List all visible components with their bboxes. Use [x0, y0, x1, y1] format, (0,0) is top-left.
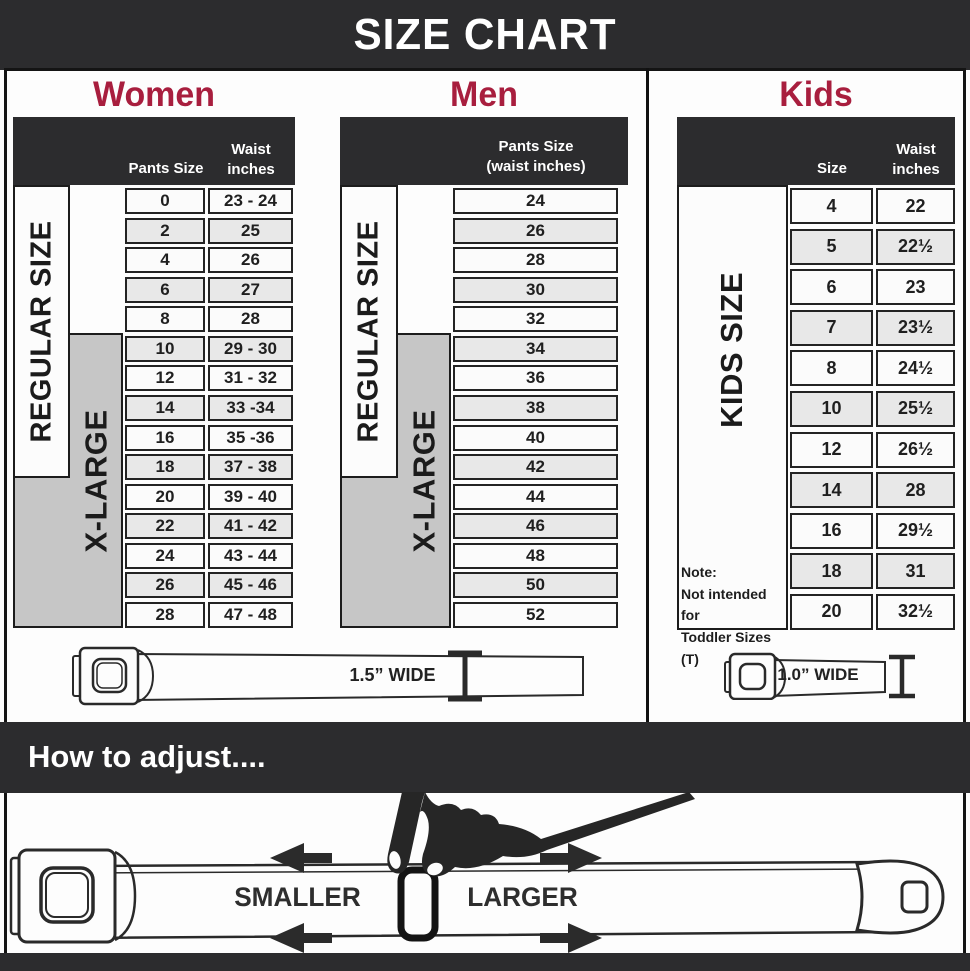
pants-size-cell: 6 [125, 277, 205, 303]
women-table-row: 10 29 - 30 [125, 336, 293, 362]
kids-table-row: 20 32½ [790, 594, 955, 630]
belt-buckle-icon [11, 850, 135, 942]
kid-size-cell: 20 [790, 594, 873, 630]
waist-inches-cell: 37 - 38 [208, 454, 293, 480]
men-table-row: 30 [453, 277, 618, 303]
pants-size-cell: 40 [453, 425, 618, 451]
waist-inches-cell: 47 - 48 [208, 602, 293, 628]
men-table-row: 24 [453, 188, 618, 214]
pants-size-cell: 26 [125, 572, 205, 598]
pants-size-cell: 0 [125, 188, 205, 214]
waist-inches-cell: 28 [208, 306, 293, 332]
page-title: SIZE CHART [353, 10, 616, 60]
men-xlarge-label: X-LARGE [407, 409, 443, 552]
kids-section-title: Kids [681, 72, 951, 117]
kid-size-cell: 7 [790, 310, 873, 346]
kids-table-row: 7 23½ [790, 310, 955, 346]
kids-table-row: 18 31 [790, 553, 955, 589]
men-table-row: 42 [453, 454, 618, 480]
kids-note-line1: Note: [681, 562, 787, 584]
adjust-belt-illustration [5, 792, 965, 953]
kids-table-header: Size Waist inches [677, 117, 955, 185]
men-table-row: 26 [453, 218, 618, 244]
kid-size-cell: 14 [790, 472, 873, 508]
pants-size-cell: 10 [125, 336, 205, 362]
waist-inches-cell: 23½ [876, 310, 955, 346]
waist-inches-cell: 45 - 46 [208, 572, 293, 598]
kids-belt-width-label: 1.0” WIDE [772, 665, 864, 685]
women-table-row: 6 27 [125, 277, 293, 303]
men-table-row: 46 [453, 513, 618, 539]
men-table-row: 52 [453, 602, 618, 628]
pants-size-cell: 2 [125, 218, 205, 244]
size-chart-poster: SIZE CHART Women Men Kids Pants Size Wai… [0, 0, 970, 971]
pants-size-cell: 26 [453, 218, 618, 244]
kid-size-cell: 6 [790, 269, 873, 305]
men-table-row: 50 [453, 572, 618, 598]
pants-size-cell: 38 [453, 395, 618, 421]
men-table-row: 44 [453, 484, 618, 510]
waist-inches-cell: 24½ [876, 350, 955, 386]
how-to-title: How to adjust.... [28, 739, 266, 775]
men-table-row: 28 [453, 247, 618, 273]
how-to-bar: How to adjust.... [0, 722, 970, 793]
men-table-row: 38 [453, 395, 618, 421]
men-table-row: 32 [453, 306, 618, 332]
women-regular-label: REGULAR SIZE [25, 221, 58, 443]
pants-size-cell: 28 [453, 247, 618, 273]
pants-size-cell: 8 [125, 306, 205, 332]
women-table-row: 4 26 [125, 247, 293, 273]
waist-inches-cell: 25 [208, 218, 293, 244]
men-regular-label: REGULAR SIZE [353, 221, 386, 443]
kids-size-header: Size [802, 159, 862, 179]
waist-inches-cell: 35 -36 [208, 425, 293, 451]
waist-inches-cell: 23 - 24 [208, 188, 293, 214]
women-table-row: 12 31 - 32 [125, 365, 293, 391]
waist-inches-cell: 31 - 32 [208, 365, 293, 391]
women-table-row: 20 39 - 40 [125, 484, 293, 510]
kids-table-row: 14 28 [790, 472, 955, 508]
women-table-row: 18 37 - 38 [125, 454, 293, 480]
waist-inches-cell: 26 [208, 247, 293, 273]
men-table-row: 40 [453, 425, 618, 451]
women-table-row: 14 33 -34 [125, 395, 293, 421]
adult-belt-width-label: 1.5” WIDE [345, 665, 440, 686]
bottom-strip [0, 953, 970, 971]
width-marker-icon [889, 657, 915, 696]
kid-size-cell: 18 [790, 553, 873, 589]
waist-inches-cell: 39 - 40 [208, 484, 293, 510]
women-table-row: 2 25 [125, 218, 293, 244]
waist-inches-cell: 26½ [876, 432, 955, 468]
title-bar: SIZE CHART [0, 0, 970, 70]
waist-inches-cell: 32½ [876, 594, 955, 630]
kids-size-label-wrap: KIDS SIZE [677, 195, 788, 505]
pants-size-cell: 22 [125, 513, 205, 539]
women-table-row: 24 43 - 44 [125, 543, 293, 569]
men-xlarge-label-wrap: X-LARGE [398, 333, 451, 628]
pants-size-cell: 32 [453, 306, 618, 332]
pants-size-cell: 18 [125, 454, 205, 480]
kids-table-row: 10 25½ [790, 391, 955, 427]
waist-inches-cell: 27 [208, 277, 293, 303]
pants-size-cell: 30 [453, 277, 618, 303]
kids-note-line2: Not intended for [681, 584, 787, 627]
women-size-table: 0 23 - 24 2 25 4 26 6 27 8 28 [125, 188, 293, 628]
women-table-row: 8 28 [125, 306, 293, 332]
pants-size-cell: 46 [453, 513, 618, 539]
men-table-row: 36 [453, 365, 618, 391]
women-table-row: 16 35 -36 [125, 425, 293, 451]
belt-slider-icon [401, 870, 435, 938]
kids-waist-header: Waist inches [884, 140, 948, 179]
waist-inches-cell: 22½ [876, 229, 955, 265]
pants-size-cell: 48 [453, 543, 618, 569]
men-table-header: Pants Size (waist inches) [340, 117, 628, 185]
section-divider [646, 68, 649, 722]
women-table-row: 22 41 - 42 [125, 513, 293, 539]
pants-size-cell: 20 [125, 484, 205, 510]
men-table-row: 48 [453, 543, 618, 569]
pants-size-cell: 50 [453, 572, 618, 598]
pants-size-cell: 44 [453, 484, 618, 510]
kid-size-cell: 16 [790, 513, 873, 549]
kids-table-row: 16 29½ [790, 513, 955, 549]
women-waist-header: Waist inches [219, 140, 283, 179]
waist-inches-cell: 43 - 44 [208, 543, 293, 569]
kid-size-cell: 12 [790, 432, 873, 468]
waist-inches-cell: 22 [876, 188, 955, 224]
women-table-row: 26 45 - 46 [125, 572, 293, 598]
waist-inches-cell: 31 [876, 553, 955, 589]
pants-size-cell: 42 [453, 454, 618, 480]
larger-label: LARGER [462, 882, 583, 913]
men-regular-label-wrap: REGULAR SIZE [340, 185, 398, 478]
pants-size-cell: 36 [453, 365, 618, 391]
belt-tip-icon [857, 861, 943, 933]
pants-size-cell: 14 [125, 395, 205, 421]
pants-size-cell: 28 [125, 602, 205, 628]
kid-size-cell: 4 [790, 188, 873, 224]
kids-table-row: 12 26½ [790, 432, 955, 468]
kids-size-label: KIDS SIZE [715, 272, 751, 428]
men-table-row: 34 [453, 336, 618, 362]
pants-size-cell: 12 [125, 365, 205, 391]
women-section-title: Women [17, 72, 291, 117]
women-regular-label-wrap: REGULAR SIZE [13, 185, 70, 478]
women-table-header: Pants Size Waist inches [13, 117, 295, 185]
pants-size-cell: 4 [125, 247, 205, 273]
women-pants-size-header: Pants Size [109, 159, 223, 179]
kid-size-cell: 5 [790, 229, 873, 265]
waist-inches-cell: 23 [876, 269, 955, 305]
waist-inches-cell: 28 [876, 472, 955, 508]
kid-size-cell: 10 [790, 391, 873, 427]
waist-inches-cell: 41 - 42 [208, 513, 293, 539]
waist-inches-cell: 29½ [876, 513, 955, 549]
pants-size-cell: 52 [453, 602, 618, 628]
waist-inches-cell: 25½ [876, 391, 955, 427]
adult-belt-illustration [70, 644, 590, 708]
pants-size-cell: 24 [453, 188, 618, 214]
kids-size-table: 4 22 5 22½ 6 23 7 23½ 8 24½ [790, 188, 955, 630]
women-table-row: 0 23 - 24 [125, 188, 293, 214]
waist-inches-cell: 33 -34 [208, 395, 293, 421]
women-table-row: 28 47 - 48 [125, 602, 293, 628]
kids-table-row: 8 24½ [790, 350, 955, 386]
waist-inches-cell: 29 - 30 [208, 336, 293, 362]
men-section-title: Men [344, 72, 623, 117]
pants-size-cell: 24 [125, 543, 205, 569]
men-pants-size-header-line2: (waist inches) [456, 157, 616, 177]
pants-size-cell: 16 [125, 425, 205, 451]
kids-table-row: 6 23 [790, 269, 955, 305]
men-size-table: 24 26 28 30 32 34 36 [453, 188, 618, 628]
kids-table-row: 5 22½ [790, 229, 955, 265]
men-pants-size-header-line1: Pants Size [456, 137, 616, 157]
pants-size-cell: 34 [453, 336, 618, 362]
women-xlarge-label: X-LARGE [79, 409, 115, 552]
smaller-label: SMALLER [232, 882, 363, 913]
kids-table-row: 4 22 [790, 188, 955, 224]
kid-size-cell: 8 [790, 350, 873, 386]
women-xlarge-label-wrap: X-LARGE [70, 333, 123, 628]
